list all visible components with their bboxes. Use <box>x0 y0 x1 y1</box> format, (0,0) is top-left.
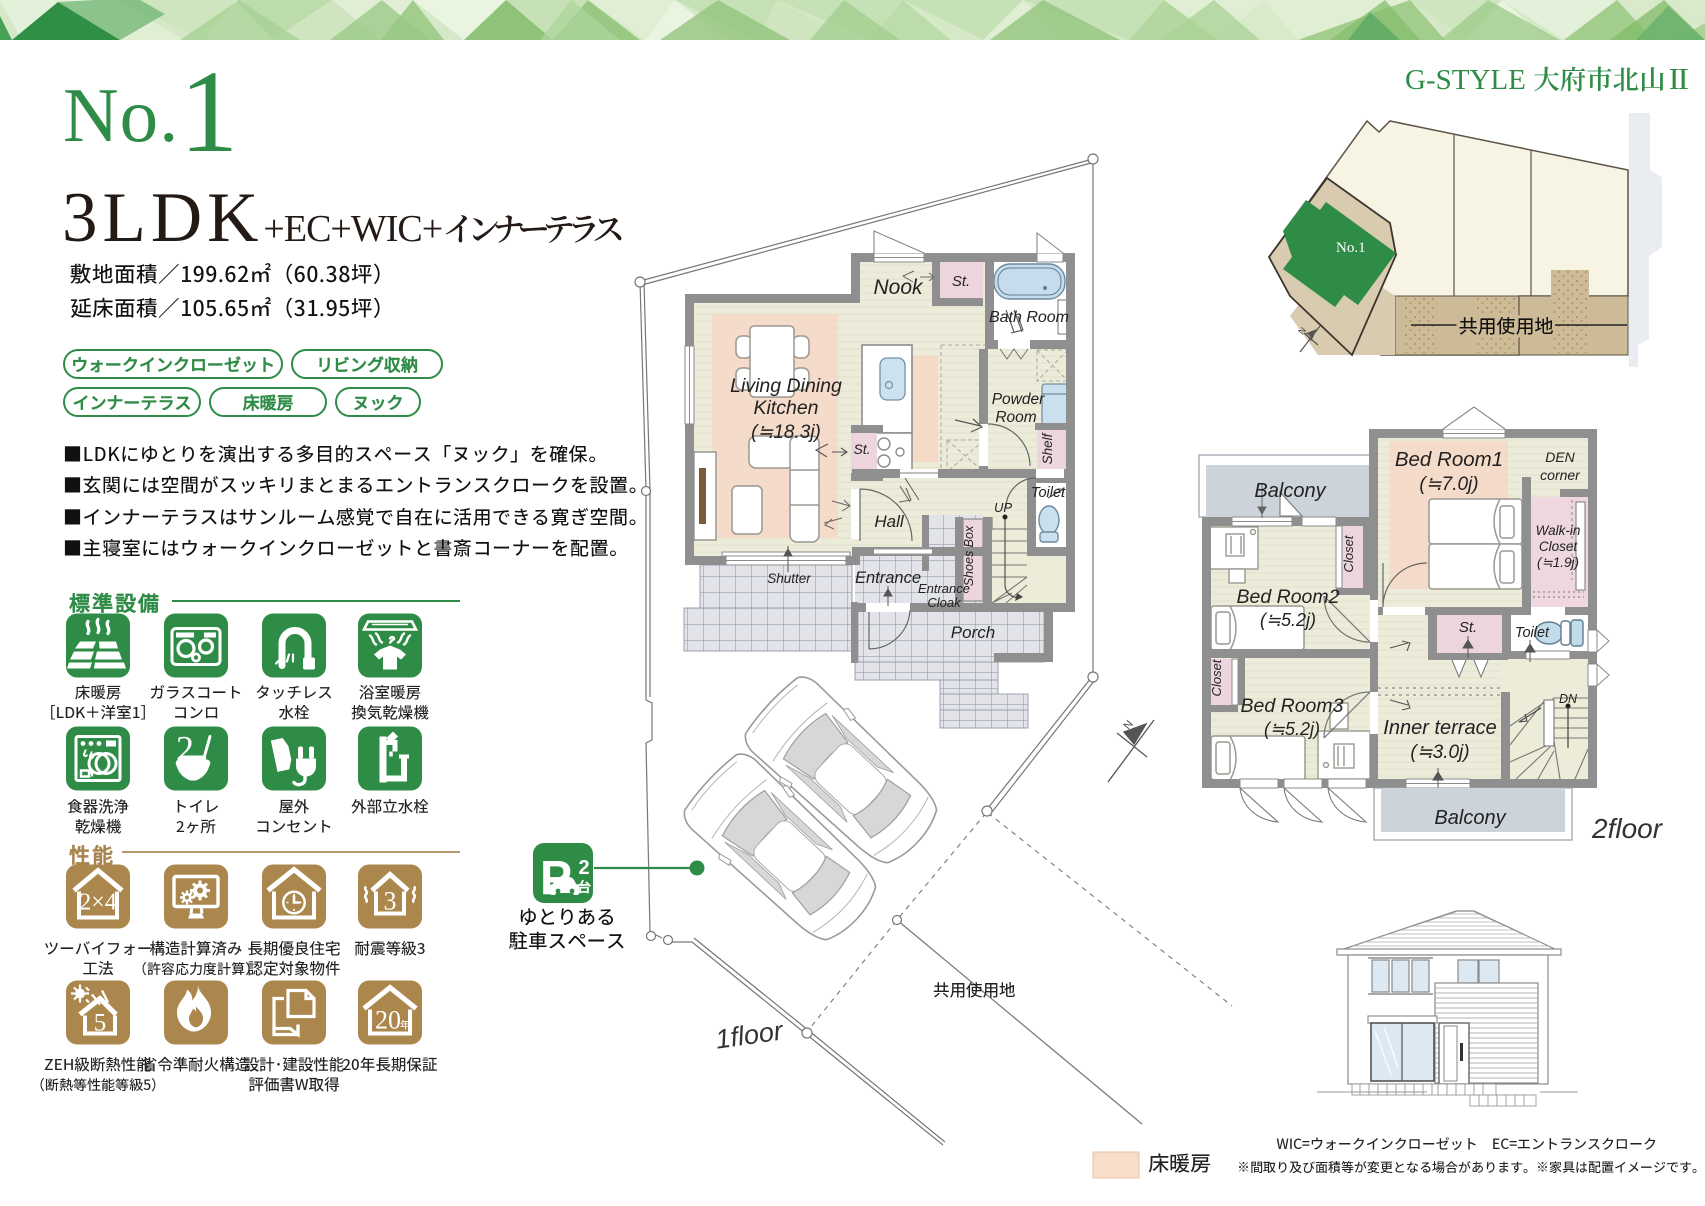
svg-text:Shelf: Shelf <box>1040 432 1055 464</box>
svg-text:Living Dining: Living Dining <box>730 375 842 397</box>
svg-text:床暖房: 床暖房 <box>1148 1148 1211 1178</box>
svg-text:駐車スペース: 駐車スペース <box>508 925 625 954</box>
svg-text:St.: St. <box>853 441 870 457</box>
svg-text:(≒3.0j): (≒3.0j) <box>1410 742 1469 763</box>
svg-text:Porch: Porch <box>951 623 995 642</box>
svg-text:Room: Room <box>995 409 1036 426</box>
svg-text:UP: UP <box>994 500 1012 515</box>
svg-text:※間取り及び面積等が変更となる場合があります。※家具は配置イ: ※間取り及び面積等が変更となる場合があります。※家具は配置イメージです。 <box>1237 1157 1705 1176</box>
svg-text:Toilet: Toilet <box>1031 485 1066 501</box>
svg-text:(≒18.3j): (≒18.3j) <box>751 422 821 443</box>
svg-text:WIC=ウォークインクローゼット EC=エントランスクローク: WIC=ウォークインクローゼット EC=エントランスクローク <box>1276 1134 1657 1154</box>
svg-text:(≒5.2j): (≒5.2j) <box>1260 610 1316 630</box>
svg-text:(≒7.0j): (≒7.0j) <box>1419 474 1478 495</box>
svg-text:Walk-in: Walk-in <box>1536 523 1581 538</box>
svg-text:Cloak: Cloak <box>927 595 962 610</box>
svg-text:G-STYLE 大府市北山Ⅱ: G-STYLE 大府市北山Ⅱ <box>1405 58 1692 97</box>
svg-text:2: 2 <box>578 857 589 879</box>
svg-text:共用使用地: 共用使用地 <box>1458 312 1553 339</box>
svg-text:St.: St. <box>1459 619 1477 636</box>
svg-text:(≒1.9j): (≒1.9j) <box>1537 555 1579 570</box>
svg-text:2floor: 2floor <box>1591 813 1664 844</box>
svg-text:Shoes Box: Shoes Box <box>962 525 976 586</box>
svg-text:台: 台 <box>577 877 591 897</box>
svg-text:Closet: Closet <box>1539 539 1579 554</box>
svg-text:Inner terrace: Inner terrace <box>1383 717 1496 739</box>
svg-text:St.: St. <box>952 273 970 290</box>
svg-text:Toilet: Toilet <box>1515 625 1550 641</box>
svg-text:corner: corner <box>1540 467 1581 483</box>
svg-text:No.1: No.1 <box>1336 240 1366 256</box>
svg-text:Bed Room1: Bed Room1 <box>1395 448 1503 471</box>
svg-text:Bed Room3: Bed Room3 <box>1241 695 1344 717</box>
svg-text:(≒5.2j): (≒5.2j) <box>1264 719 1320 739</box>
svg-text:DEN: DEN <box>1545 449 1575 465</box>
svg-text:Shutter: Shutter <box>767 571 811 586</box>
svg-text:1floor: 1floor <box>714 1015 786 1054</box>
svg-text:Nook: Nook <box>873 276 924 299</box>
svg-text:Bath Room: Bath Room <box>989 309 1069 326</box>
svg-text:共用使用地: 共用使用地 <box>933 977 1016 1001</box>
svg-text:DN: DN <box>1559 692 1578 706</box>
svg-text:Entrance: Entrance <box>918 581 970 596</box>
svg-text:Hall: Hall <box>874 512 905 531</box>
svg-text:Closet: Closet <box>1341 534 1356 572</box>
svg-text:Balcony: Balcony <box>1434 807 1506 829</box>
svg-text:Bed Room2: Bed Room2 <box>1237 586 1340 608</box>
svg-text:Kitchen: Kitchen <box>753 397 818 419</box>
svg-text:Entrance: Entrance <box>855 569 921 587</box>
svg-text:Closet: Closet <box>1209 658 1224 696</box>
svg-text:Powder: Powder <box>992 391 1045 408</box>
svg-text:Balcony: Balcony <box>1254 480 1326 502</box>
